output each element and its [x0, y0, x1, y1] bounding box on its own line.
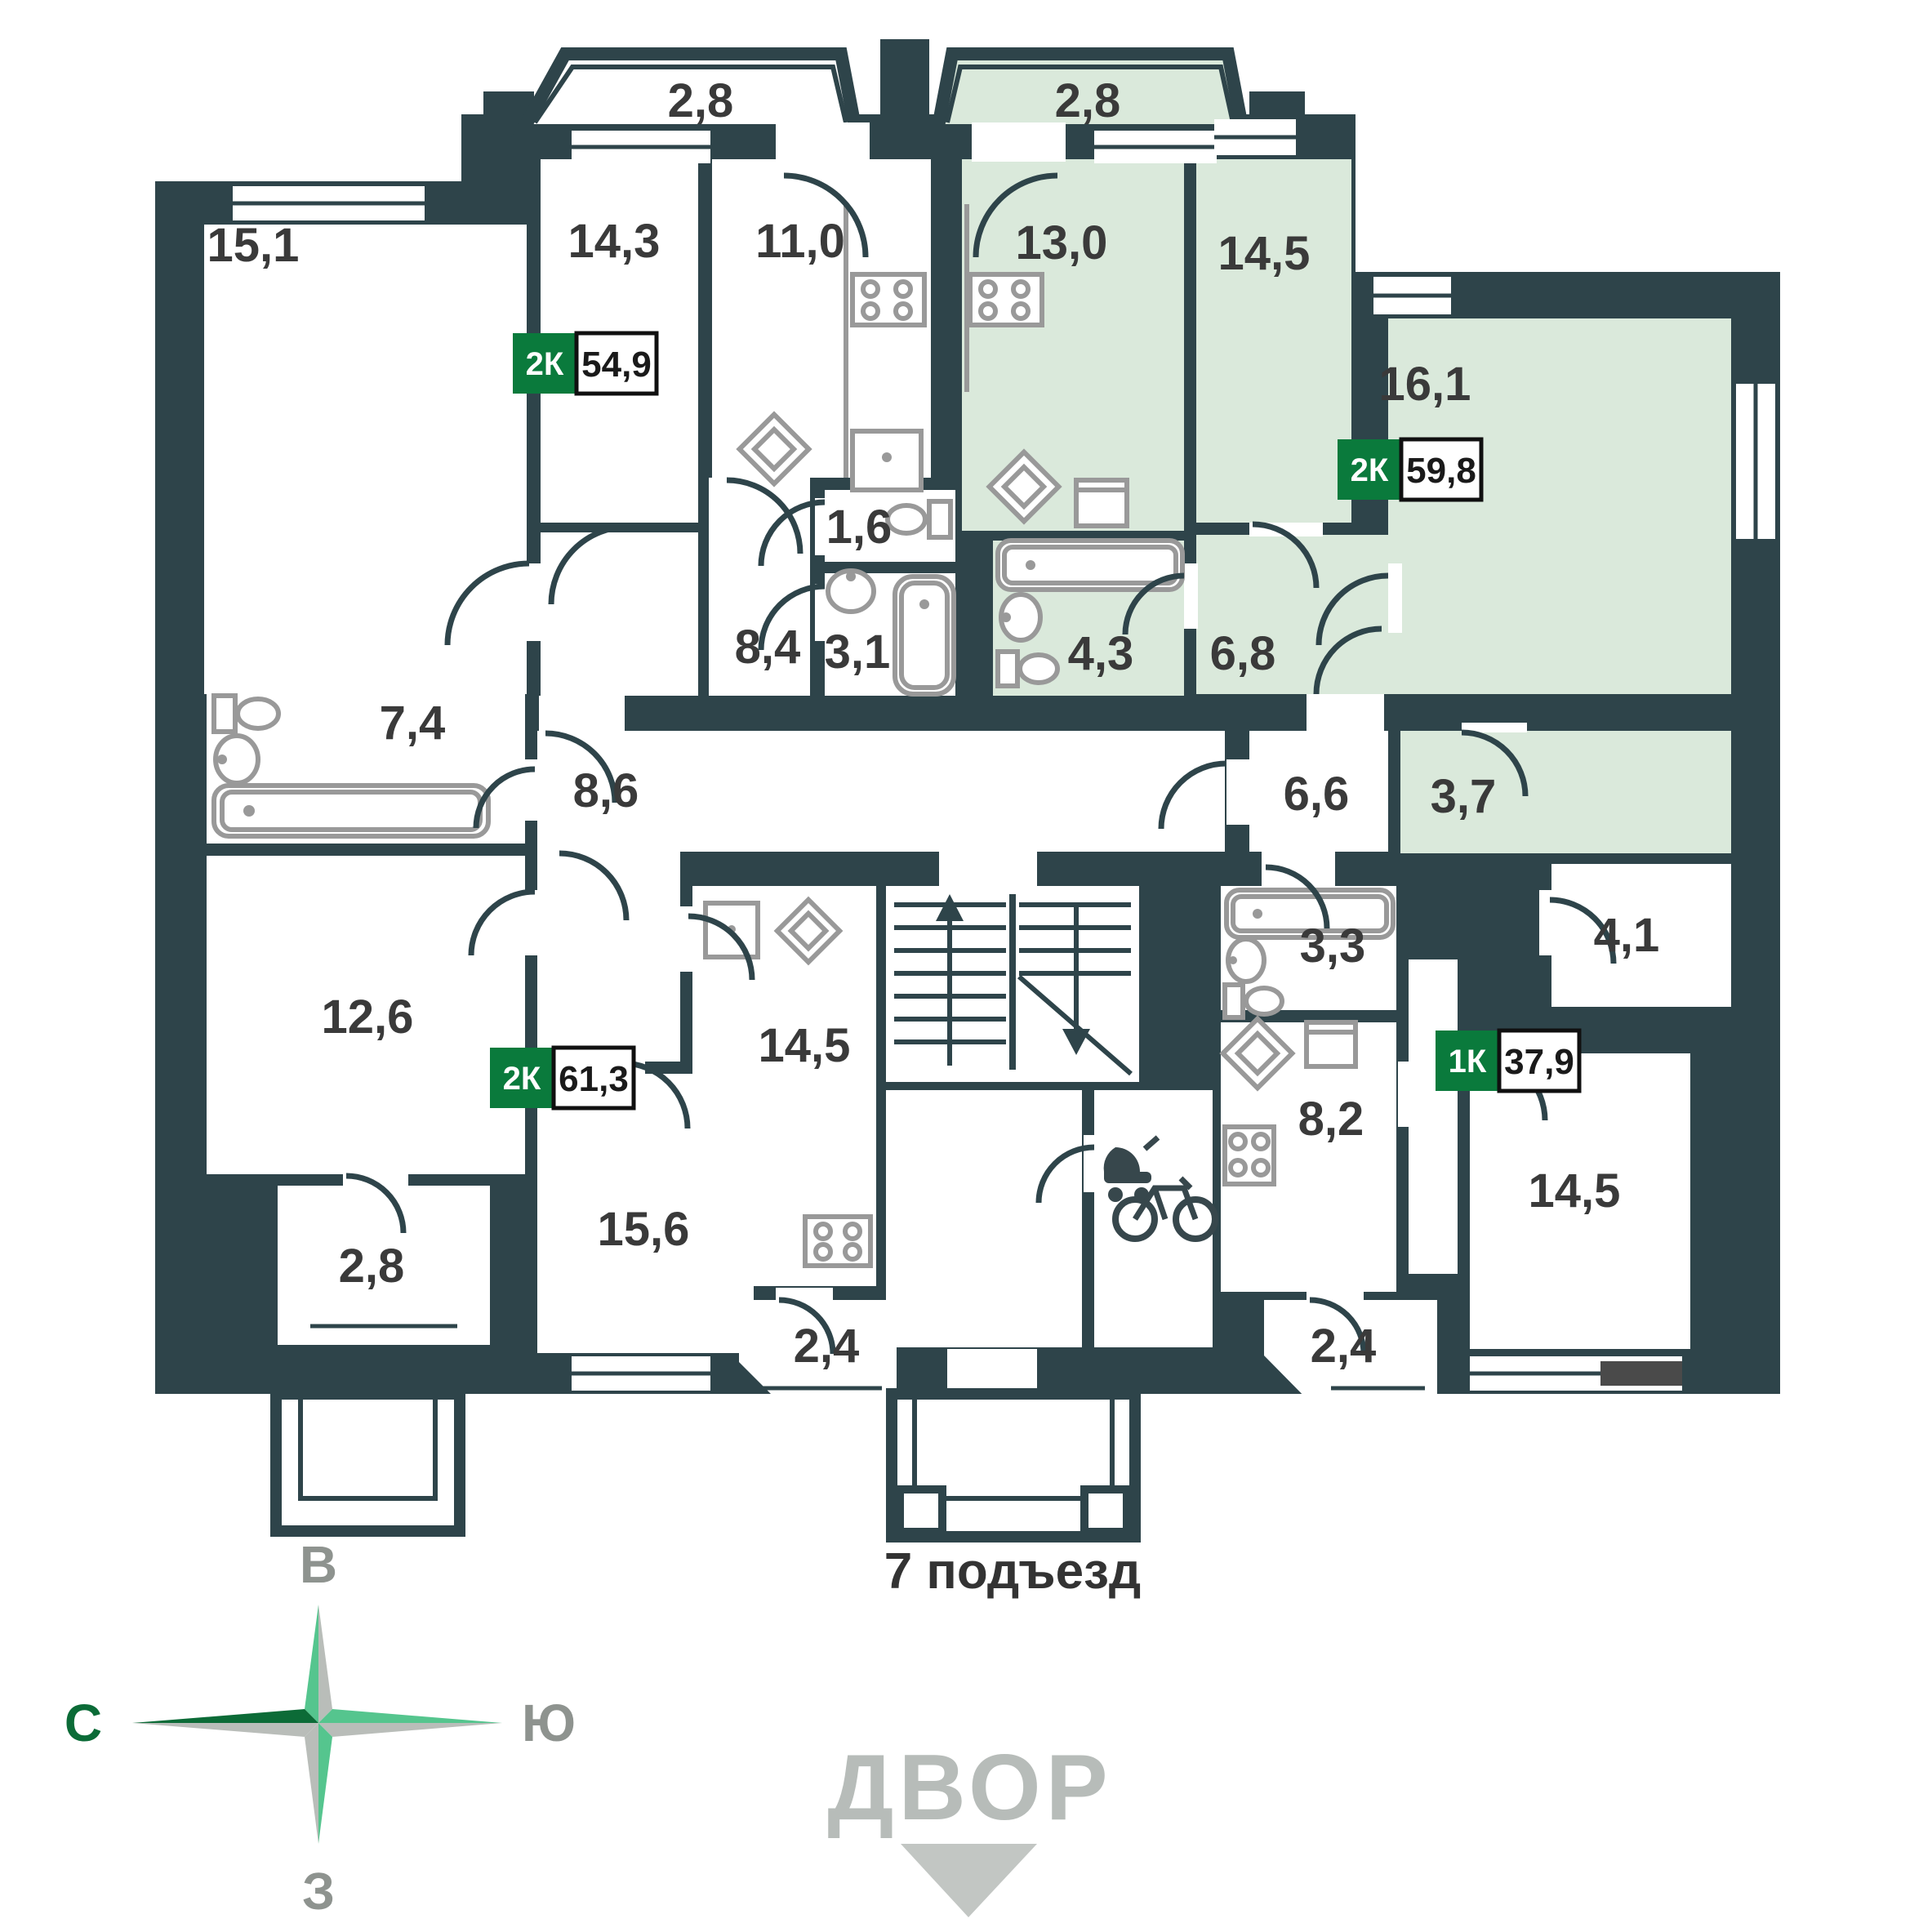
- window-14-5-bottom: [1470, 1356, 1682, 1391]
- vestibule: [886, 1090, 1082, 1347]
- label-3-3: 3,3: [1300, 919, 1366, 973]
- fridge-icon: [1307, 1022, 1356, 1066]
- stove-icon: [1225, 1127, 1274, 1184]
- window-15-1: [233, 186, 425, 220]
- label-14-5-mid: 14,5: [759, 1019, 851, 1072]
- window-14-3: [572, 131, 710, 163]
- label-4-3: 4,3: [1068, 627, 1134, 680]
- window-15-6: [572, 1356, 710, 1391]
- label-2-8-loggia: 2,8: [339, 1240, 405, 1293]
- toilet-icon: [214, 696, 278, 732]
- label-7-4: 7,4: [380, 697, 446, 750]
- window-loggia: [310, 1311, 457, 1342]
- svg-text:37,9: 37,9: [1504, 1042, 1574, 1082]
- label-2-4-left: 2,4: [794, 1320, 860, 1373]
- sink-icon: [216, 736, 258, 783]
- window-16-1: [1373, 277, 1451, 314]
- svg-text:54,9: 54,9: [581, 345, 652, 385]
- sink-icon: [1001, 594, 1040, 640]
- toilet-icon: [1225, 985, 1282, 1017]
- label-3-7: 3,7: [1431, 770, 1497, 823]
- apartment-badge-2k-61-3[interactable]: 2К 61,3: [490, 1048, 634, 1108]
- svg-text:2К: 2К: [1351, 452, 1389, 488]
- svg-text:2К: 2К: [526, 346, 564, 382]
- label-16-1: 16,1: [1379, 358, 1471, 411]
- terrace-left: [276, 1394, 460, 1531]
- floor-plan: 2,8 2,8 15,1 14,3 11,0 13,0 14,5 16,1 1,…: [0, 0, 1932, 1932]
- label-4-1: 4,1: [1594, 909, 1660, 962]
- label-15-1: 15,1: [207, 219, 300, 272]
- svg-text:59,8: 59,8: [1406, 451, 1476, 491]
- window-13-0: [1094, 131, 1217, 163]
- sink-icon: [1228, 939, 1264, 982]
- toilet-icon: [888, 501, 950, 537]
- label-14-5-top: 14,5: [1218, 227, 1311, 280]
- kitchen-sink-icon: [852, 431, 921, 490]
- stove-icon: [970, 274, 1042, 325]
- window-14-5-top: [1214, 119, 1296, 155]
- window-16-1-side: [1736, 384, 1775, 539]
- compass-north-label: С: [65, 1694, 102, 1752]
- label-2-4-right: 2,4: [1311, 1320, 1377, 1373]
- stove-icon: [852, 274, 924, 325]
- label-bay-left: 2,8: [668, 74, 734, 127]
- room-15-1: [204, 225, 527, 694]
- yard-direction: ДВОР: [827, 1736, 1112, 1917]
- compass-west-label: З: [302, 1862, 335, 1921]
- apartment-badge-1k-37-9[interactable]: 1К 37,9: [1436, 1031, 1579, 1091]
- label-14-3: 14,3: [568, 215, 661, 268]
- svg-text:61,3: 61,3: [559, 1059, 629, 1099]
- bathtub-icon: [214, 786, 488, 836]
- label-1-6: 1,6: [826, 501, 893, 554]
- hall-37-9: [1409, 959, 1458, 1274]
- entrance-porch: [892, 1394, 1135, 1537]
- svg-text:1К: 1К: [1449, 1044, 1487, 1080]
- apartment-badge-2k-59-8[interactable]: 2К 59,8: [1338, 439, 1481, 500]
- room-14-5-top: [1196, 159, 1351, 523]
- label-14-5-bottom: 14,5: [1529, 1164, 1621, 1218]
- compass-south-label: Ю: [522, 1694, 576, 1752]
- label-8-2: 8,2: [1298, 1093, 1364, 1146]
- room-13-0: [962, 159, 1184, 531]
- stove-icon: [805, 1217, 870, 1266]
- yard-label: ДВОР: [827, 1736, 1112, 1840]
- apartment-badge-2k-54-9[interactable]: 2К 54,9: [513, 333, 657, 394]
- label-12-6: 12,6: [322, 990, 414, 1044]
- label-3-1: 3,1: [825, 625, 891, 679]
- label-6-6: 6,6: [1284, 768, 1350, 821]
- label-8-4: 8,4: [735, 621, 801, 674]
- label-6-8: 6,8: [1210, 627, 1276, 680]
- fridge-icon: [1076, 480, 1127, 526]
- sink-icon: [828, 571, 874, 612]
- bathtub-icon: [895, 576, 954, 694]
- label-8-6: 8,6: [573, 764, 639, 817]
- yard-arrow: [901, 1844, 1037, 1917]
- toilet-icon: [998, 652, 1057, 686]
- compass-rose: В Ю З С: [65, 1535, 576, 1921]
- entrance-label: 7 подъезд: [884, 1543, 1142, 1600]
- compass-east-label: В: [300, 1535, 337, 1594]
- label-11-0: 11,0: [755, 215, 845, 268]
- label-15-6: 15,6: [598, 1203, 690, 1256]
- label-13-0: 13,0: [1016, 216, 1108, 269]
- label-bay-right: 2,8: [1055, 74, 1121, 127]
- svg-text:2К: 2К: [503, 1061, 541, 1097]
